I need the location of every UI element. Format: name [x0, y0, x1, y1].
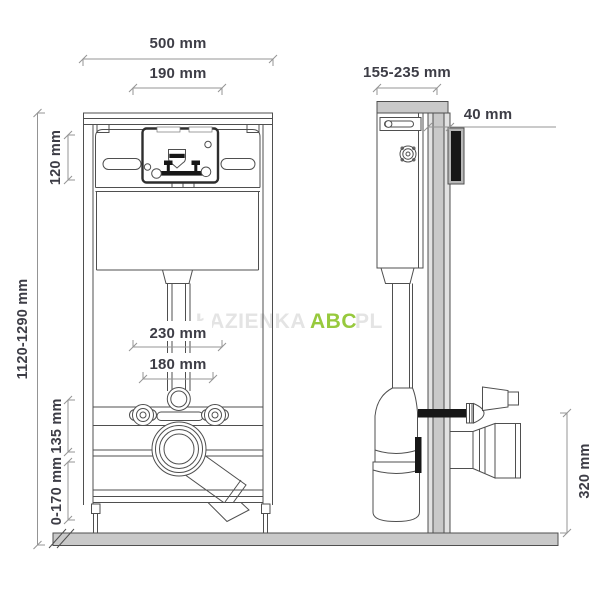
watermark-suffix: PL — [355, 310, 383, 333]
dim-drain-offset: 135 mm — [49, 398, 65, 453]
diagram-canvas: ŁAZIENKA ABC PL — [0, 0, 600, 600]
dim-frame-height: 1120-1290 mm — [15, 279, 31, 380]
front-hanger-tab-left — [97, 125, 109, 133]
wc-frame-technical-drawing: ŁAZIENKA ABC PL — [0, 0, 600, 600]
front-hanger-tab-right — [247, 125, 259, 133]
wc-bolt-left — [133, 405, 154, 426]
wall-bracket — [448, 128, 464, 184]
dim-window-width: 190 mm — [149, 65, 206, 82]
water-inlet — [400, 146, 416, 162]
watermark-brand: ABC — [310, 310, 357, 333]
side-cistern — [377, 113, 423, 268]
watermark: ŁAZIENKA ABC PL — [196, 310, 383, 333]
dim-cistern-height: 120 mm — [48, 130, 64, 185]
watermark-prefix: ŁAZIENKA — [196, 310, 306, 333]
flush-plate-window — [143, 127, 219, 188]
side-view — [373, 102, 521, 546]
dim-floor-adjust: 0-170 mm — [49, 457, 65, 526]
window-hole-top-right — [205, 141, 211, 147]
front-rod-right — [221, 159, 255, 170]
dim-spacing-outer: 230 mm — [149, 325, 206, 342]
wc-bolt-right — [205, 405, 226, 426]
side-top-bar — [377, 102, 448, 114]
front-rod-left — [103, 159, 141, 170]
dim-outlet-height: 320 mm — [577, 443, 593, 498]
trap-cup — [373, 462, 420, 522]
waste-pipe-lower — [208, 503, 249, 522]
window-slot-left — [157, 127, 180, 132]
mounting-bar — [159, 171, 208, 176]
rail-slot — [157, 412, 203, 421]
dim-spacing-inner: 180 mm — [149, 356, 206, 373]
dim-depth-range: 155-235 mm — [363, 64, 451, 81]
window-slot-right — [189, 127, 212, 132]
dim-total-width: 500 mm — [149, 35, 206, 52]
drain-opening — [152, 422, 206, 476]
floor — [49, 529, 558, 548]
window-hole-left — [144, 164, 150, 170]
side-flush-pipe — [373, 268, 420, 522]
dim-profile-depth: 40 mm — [464, 106, 513, 123]
